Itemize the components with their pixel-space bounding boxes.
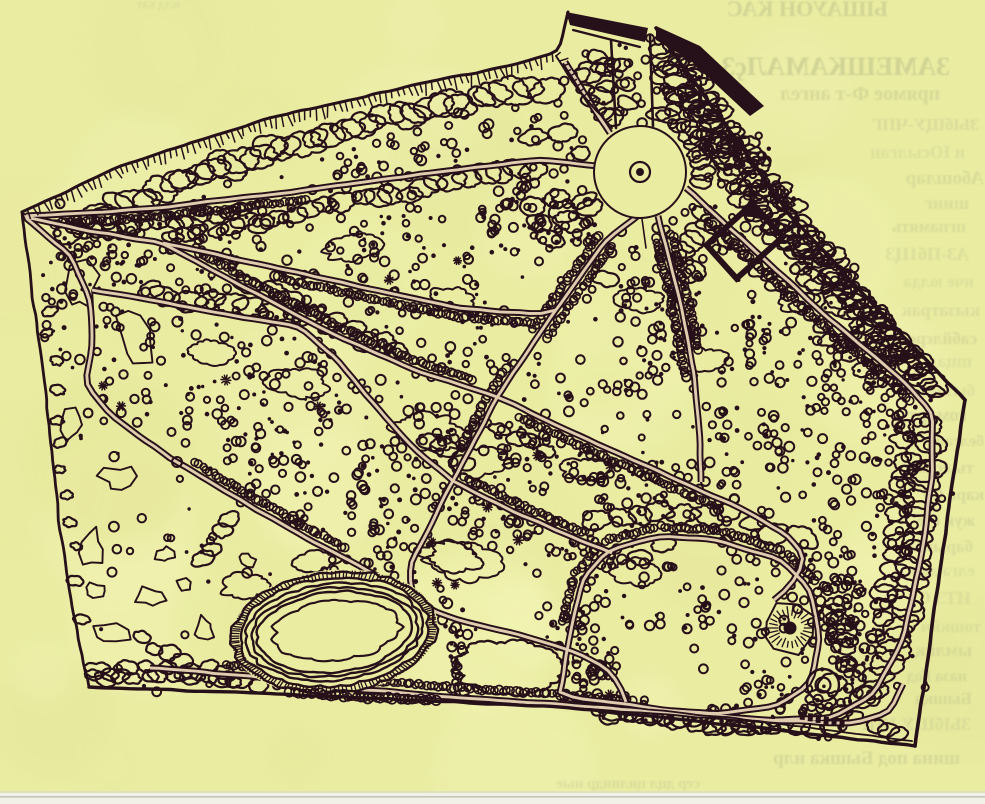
svg-text:АЗ-Пб1ЦЗ: АЗ-Пб1ЦЗ [885, 244, 969, 264]
svg-text:сер дцл цилиндр ные: сер дцл цилиндр ные [556, 776, 700, 792]
svg-text:ЫШАУОН КАС: ЫШАУОН КАС [727, 0, 888, 21]
svg-text:нче юлда: нче юлда [903, 272, 974, 291]
svg-text:прямое Ф-т ангел: прямое Ф-т ангел [780, 83, 940, 105]
svg-text:наза Год: наза Год [907, 668, 967, 685]
svg-text:ЗАМЕШКАМАЛçЗ: ЗАМЕШКАМАЛçЗ [721, 52, 950, 81]
svg-text:нлд хат: нлд хат [136, 0, 180, 11]
svg-text:кызатрак: кызатрак [901, 300, 980, 320]
svg-text:сабйлєре: сабйлєре [908, 329, 977, 348]
svg-text:ымлйқ: ымлйқ [914, 640, 972, 660]
svg-text:шинг: шинг [925, 193, 969, 213]
svg-text:шина под Бышка нлр: шина под Бышка нлр [773, 748, 960, 769]
svg-text:ЗЫбЩУ-ЧПГ: ЗЫбЩУ-ЧПГ [872, 115, 980, 134]
svg-text:и Юсылган: и Юсылган [870, 142, 965, 162]
svg-text:Абошлар: Абошлар [906, 168, 984, 189]
svg-text:пгпамять: пгпамять [892, 217, 966, 236]
